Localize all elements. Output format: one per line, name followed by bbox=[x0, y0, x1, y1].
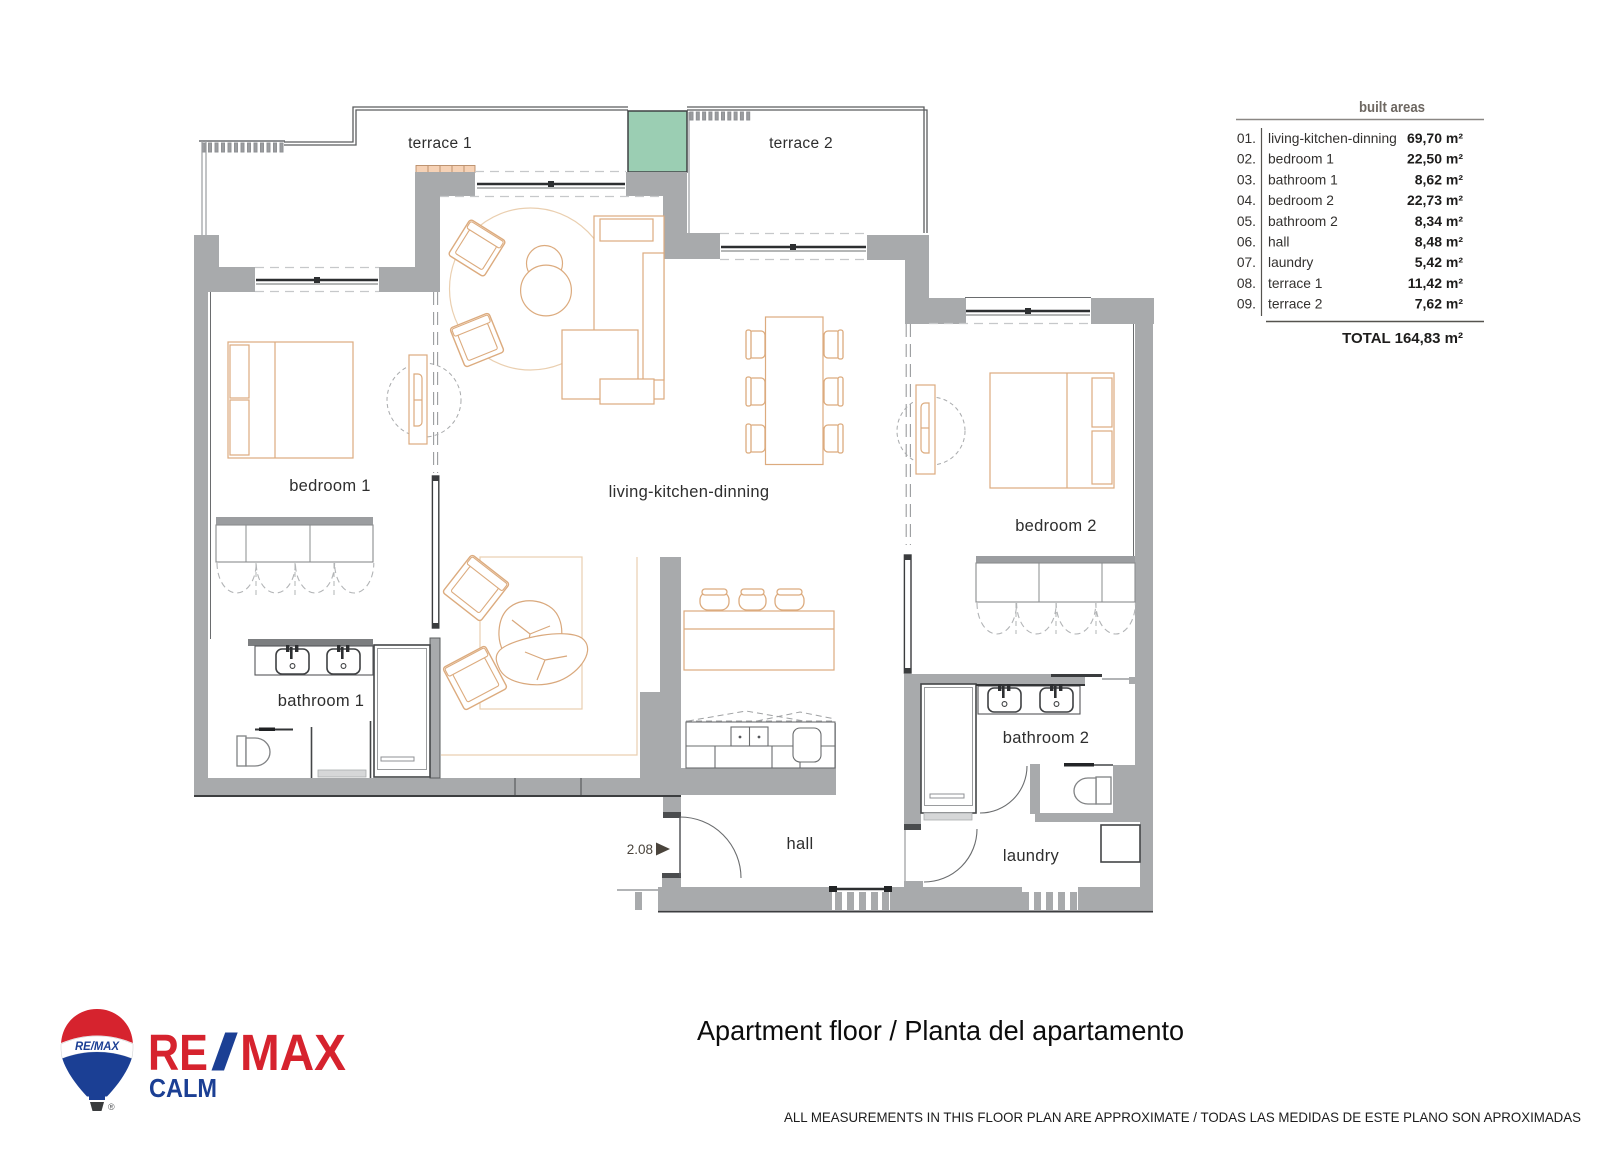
svg-text:2.08: 2.08 bbox=[627, 842, 653, 857]
svg-text:terrace 2: terrace 2 bbox=[769, 135, 833, 152]
svg-text:living-kitchen-dinning: living-kitchen-dinning bbox=[1268, 131, 1397, 146]
svg-text:11,42 m²: 11,42 m² bbox=[1408, 275, 1464, 291]
svg-text:06.: 06. bbox=[1237, 235, 1256, 250]
svg-text:living-kitchen-dinning: living-kitchen-dinning bbox=[609, 483, 770, 501]
svg-text:8,48 m²: 8,48 m² bbox=[1415, 234, 1464, 250]
svg-text:CALM: CALM bbox=[149, 1073, 217, 1103]
svg-text:terrace 2: terrace 2 bbox=[1268, 297, 1322, 312]
svg-text:05.: 05. bbox=[1237, 214, 1256, 229]
svg-text:04.: 04. bbox=[1237, 193, 1256, 208]
svg-text:bathroom 1: bathroom 1 bbox=[1268, 172, 1338, 187]
svg-text:09.: 09. bbox=[1237, 297, 1256, 312]
svg-text:69,70 m²: 69,70 m² bbox=[1407, 130, 1463, 146]
svg-text:01.: 01. bbox=[1237, 131, 1256, 146]
svg-text:08.: 08. bbox=[1237, 276, 1256, 291]
svg-text:terrace 1: terrace 1 bbox=[1268, 276, 1322, 291]
svg-text:MAX: MAX bbox=[240, 1024, 346, 1081]
svg-text:®: ® bbox=[108, 1102, 115, 1112]
svg-text:bedroom 2: bedroom 2 bbox=[1268, 193, 1334, 208]
svg-text:bathroom 2: bathroom 2 bbox=[1003, 729, 1089, 747]
svg-text:laundry: laundry bbox=[1268, 255, 1313, 270]
svg-text:bedroom 1: bedroom 1 bbox=[289, 477, 371, 495]
svg-text:22,50 m²: 22,50 m² bbox=[1407, 151, 1463, 167]
svg-text:ALL MEASUREMENTS IN THIS FLOOR: ALL MEASUREMENTS IN THIS FLOOR PLAN ARE … bbox=[784, 1110, 1581, 1125]
svg-text:07.: 07. bbox=[1237, 255, 1256, 270]
svg-text:bedroom 1: bedroom 1 bbox=[1268, 152, 1334, 167]
svg-text:hall: hall bbox=[1268, 235, 1289, 250]
svg-text:laundry: laundry bbox=[1003, 847, 1060, 865]
svg-text:hall: hall bbox=[787, 835, 814, 853]
svg-text:22,73 m²: 22,73 m² bbox=[1407, 192, 1463, 208]
svg-text:03.: 03. bbox=[1237, 172, 1256, 187]
svg-text:7,62 m²: 7,62 m² bbox=[1415, 296, 1464, 312]
svg-text:bedroom 2: bedroom 2 bbox=[1015, 517, 1097, 535]
svg-text:bathroom 2: bathroom 2 bbox=[1268, 214, 1338, 229]
svg-text:5,42 m²: 5,42 m² bbox=[1415, 254, 1464, 270]
svg-text:bathroom 1: bathroom 1 bbox=[278, 692, 364, 710]
svg-text:RE/MAX: RE/MAX bbox=[75, 1041, 120, 1053]
svg-text:02.: 02. bbox=[1237, 152, 1256, 167]
svg-text:8,34 m²: 8,34 m² bbox=[1415, 213, 1464, 229]
svg-text:TOTAL 164,83 m²: TOTAL 164,83 m² bbox=[1342, 330, 1463, 347]
svg-text:Apartment floor / Planta del a: Apartment floor / Planta del apartamento bbox=[697, 1015, 1184, 1046]
svg-text:terrace 1: terrace 1 bbox=[408, 135, 472, 152]
svg-text:built areas: built areas bbox=[1359, 99, 1425, 116]
svg-text:8,62 m²: 8,62 m² bbox=[1415, 171, 1464, 187]
